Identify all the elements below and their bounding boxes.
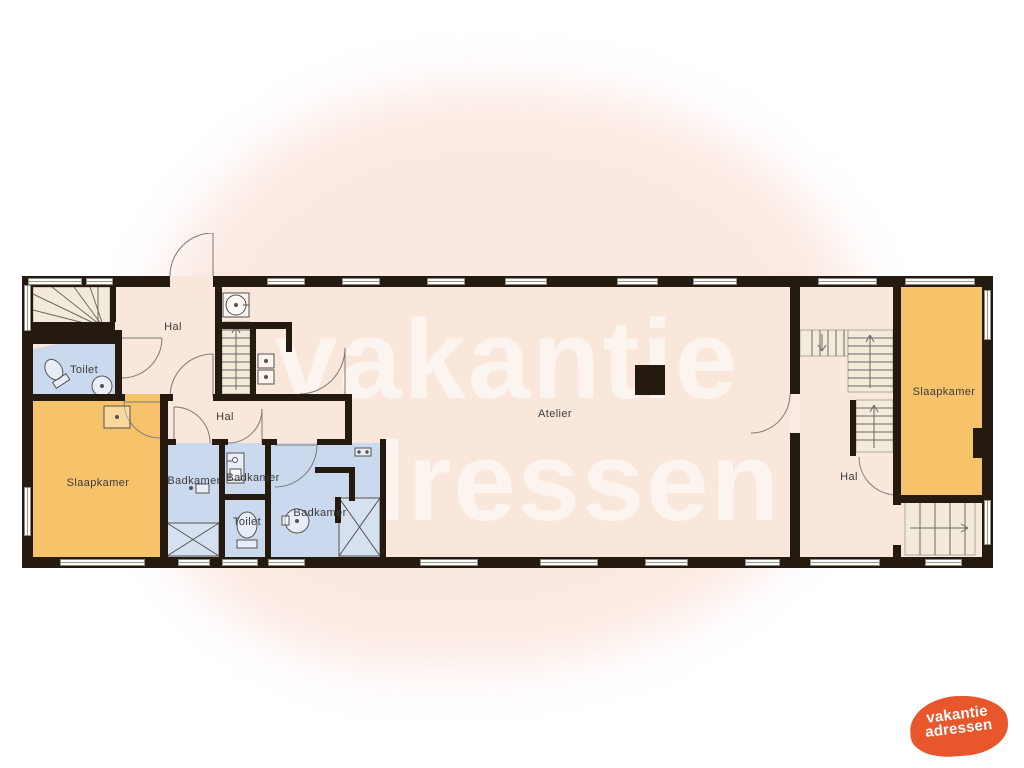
room-label-badkamer-right: Badkamer: [293, 507, 346, 519]
window: [925, 559, 962, 566]
window: [818, 278, 877, 285]
window: [905, 278, 975, 285]
window: [24, 487, 31, 536]
sink-icon: [104, 406, 130, 428]
wall: [345, 398, 352, 445]
column: [635, 365, 665, 395]
room-label-slaapkamer-left: Slaapkamer: [67, 477, 130, 489]
window: [984, 290, 991, 340]
window: [745, 559, 780, 566]
wall-under-stairs: [33, 322, 115, 344]
wall: [790, 433, 800, 568]
wall: [380, 439, 386, 557]
window: [645, 559, 688, 566]
wall-chimney: [973, 428, 985, 458]
window: [693, 278, 737, 285]
room-label-hal-right: Hal: [840, 471, 858, 483]
shower-icon: [167, 523, 219, 556]
wall: [349, 467, 355, 501]
window: [267, 278, 305, 285]
window: [420, 559, 478, 566]
window: [984, 500, 991, 545]
window: [540, 559, 598, 566]
wall: [893, 545, 901, 568]
logo: vakantie adressen: [902, 692, 1014, 762]
wall: [215, 287, 222, 394]
washer-icon: [258, 354, 274, 384]
window: [28, 278, 82, 285]
room-label-hal-top-left: Hal: [164, 321, 182, 333]
toilet-icon: [41, 356, 70, 388]
wall: [222, 322, 292, 329]
door-opening: [170, 276, 213, 287]
window: [86, 278, 113, 285]
wall: [893, 276, 901, 505]
wall: [222, 494, 268, 500]
wall: [286, 322, 292, 352]
wall: [110, 287, 116, 322]
room-label-badkamer-left: Badkamer: [167, 475, 220, 487]
room-label-slaapkamer-right: Slaapkamer: [913, 386, 976, 398]
wall: [265, 445, 271, 557]
room-label-atelier: Atelier: [538, 408, 572, 420]
sink-icon: [223, 293, 249, 317]
sink-icon: [92, 376, 112, 396]
window: [178, 559, 210, 566]
wall: [317, 439, 352, 445]
wall: [33, 394, 125, 401]
window: [222, 559, 258, 566]
room-label-toilet-left: Toilet: [70, 364, 98, 376]
wall: [250, 322, 256, 394]
wall: [219, 445, 225, 557]
wall: [850, 400, 856, 456]
floor-plan: vakantie adressen: [22, 276, 993, 568]
tap-icon: [355, 448, 371, 456]
wall: [115, 330, 122, 394]
room-label-toilet-middle: Toilet: [233, 516, 261, 528]
window: [268, 559, 305, 566]
wall: [901, 495, 993, 503]
window: [427, 278, 465, 285]
window: [342, 278, 380, 285]
window: [505, 278, 547, 285]
window: [810, 559, 880, 566]
wall: [213, 394, 352, 401]
window: [24, 285, 31, 331]
room-label-hal-middle: Hal: [216, 411, 234, 423]
window: [617, 278, 658, 285]
room-label-badkamer-middle: Badkamer: [226, 472, 279, 484]
wall: [790, 276, 800, 394]
window: [60, 559, 145, 566]
